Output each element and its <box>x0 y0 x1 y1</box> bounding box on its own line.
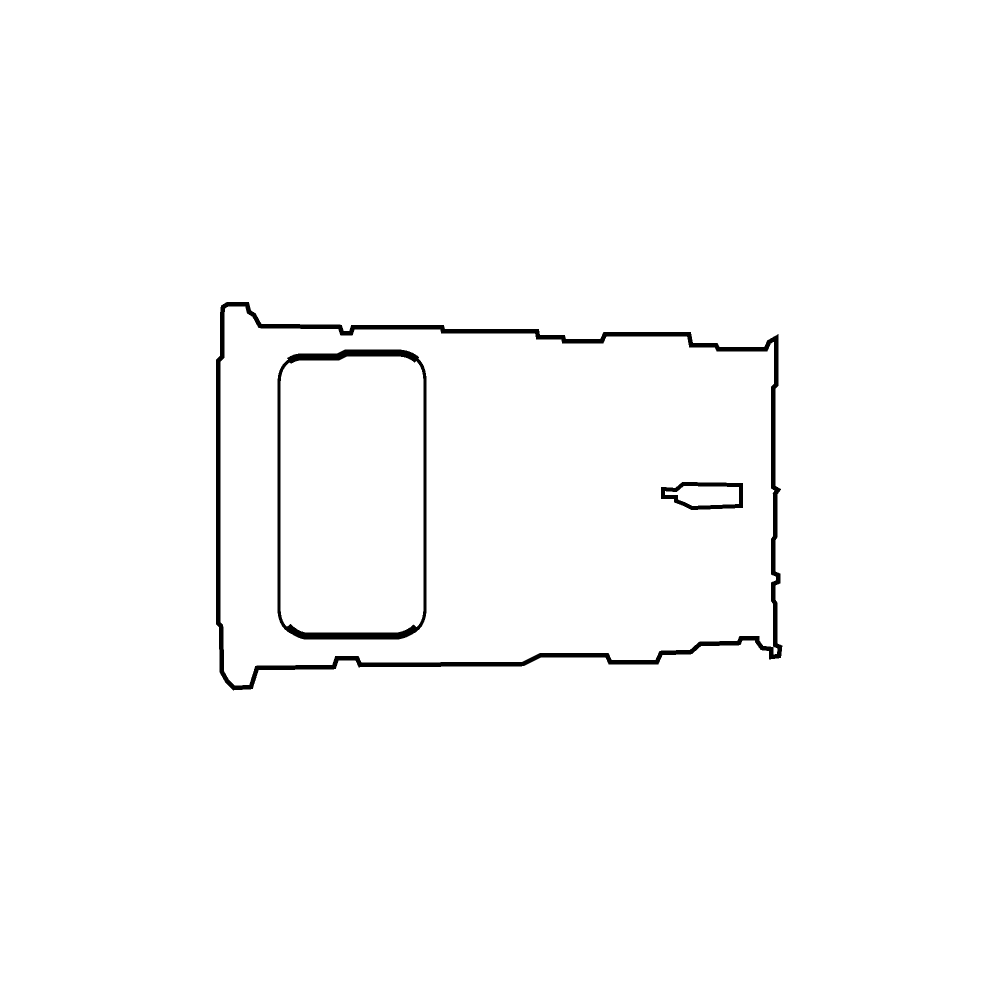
sim-slot-outline <box>279 353 425 636</box>
tray-drawing <box>0 0 1000 1000</box>
sim-slot-top-edge-thick <box>289 353 417 361</box>
tray-outer-outline <box>218 304 780 688</box>
canvas-area <box>0 0 1000 1000</box>
sim-slot-bottom-edge-thick <box>288 626 416 636</box>
latch-notch-outline <box>663 484 741 508</box>
